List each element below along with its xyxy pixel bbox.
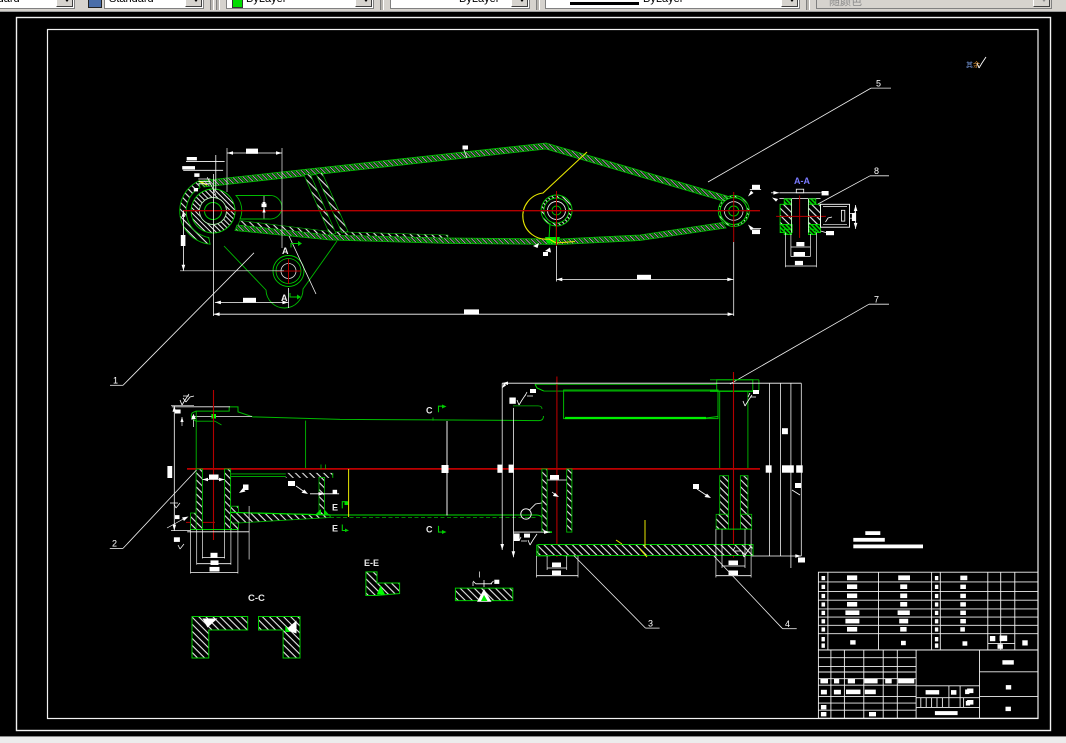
svg-text:A: A [282, 246, 289, 256]
svg-text:4: 4 [785, 619, 790, 629]
svg-text:8: 8 [874, 166, 879, 176]
svg-text:C: C [426, 525, 433, 535]
svg-text:E-E: E-E [364, 558, 379, 568]
svg-text:C-C: C-C [248, 593, 265, 604]
svg-text:E: E [332, 524, 338, 534]
svg-text:7: 7 [874, 294, 879, 304]
svg-text:2: 2 [112, 539, 117, 549]
svg-text:3: 3 [648, 618, 653, 628]
svg-text:A: A [281, 293, 288, 303]
svg-text:E: E [332, 503, 338, 513]
svg-text:5: 5 [876, 78, 881, 88]
svg-text:I: I [479, 571, 481, 580]
svg-text:1: 1 [113, 376, 118, 386]
svg-text:C: C [426, 406, 433, 416]
svg-text:A-A: A-A [794, 176, 810, 186]
